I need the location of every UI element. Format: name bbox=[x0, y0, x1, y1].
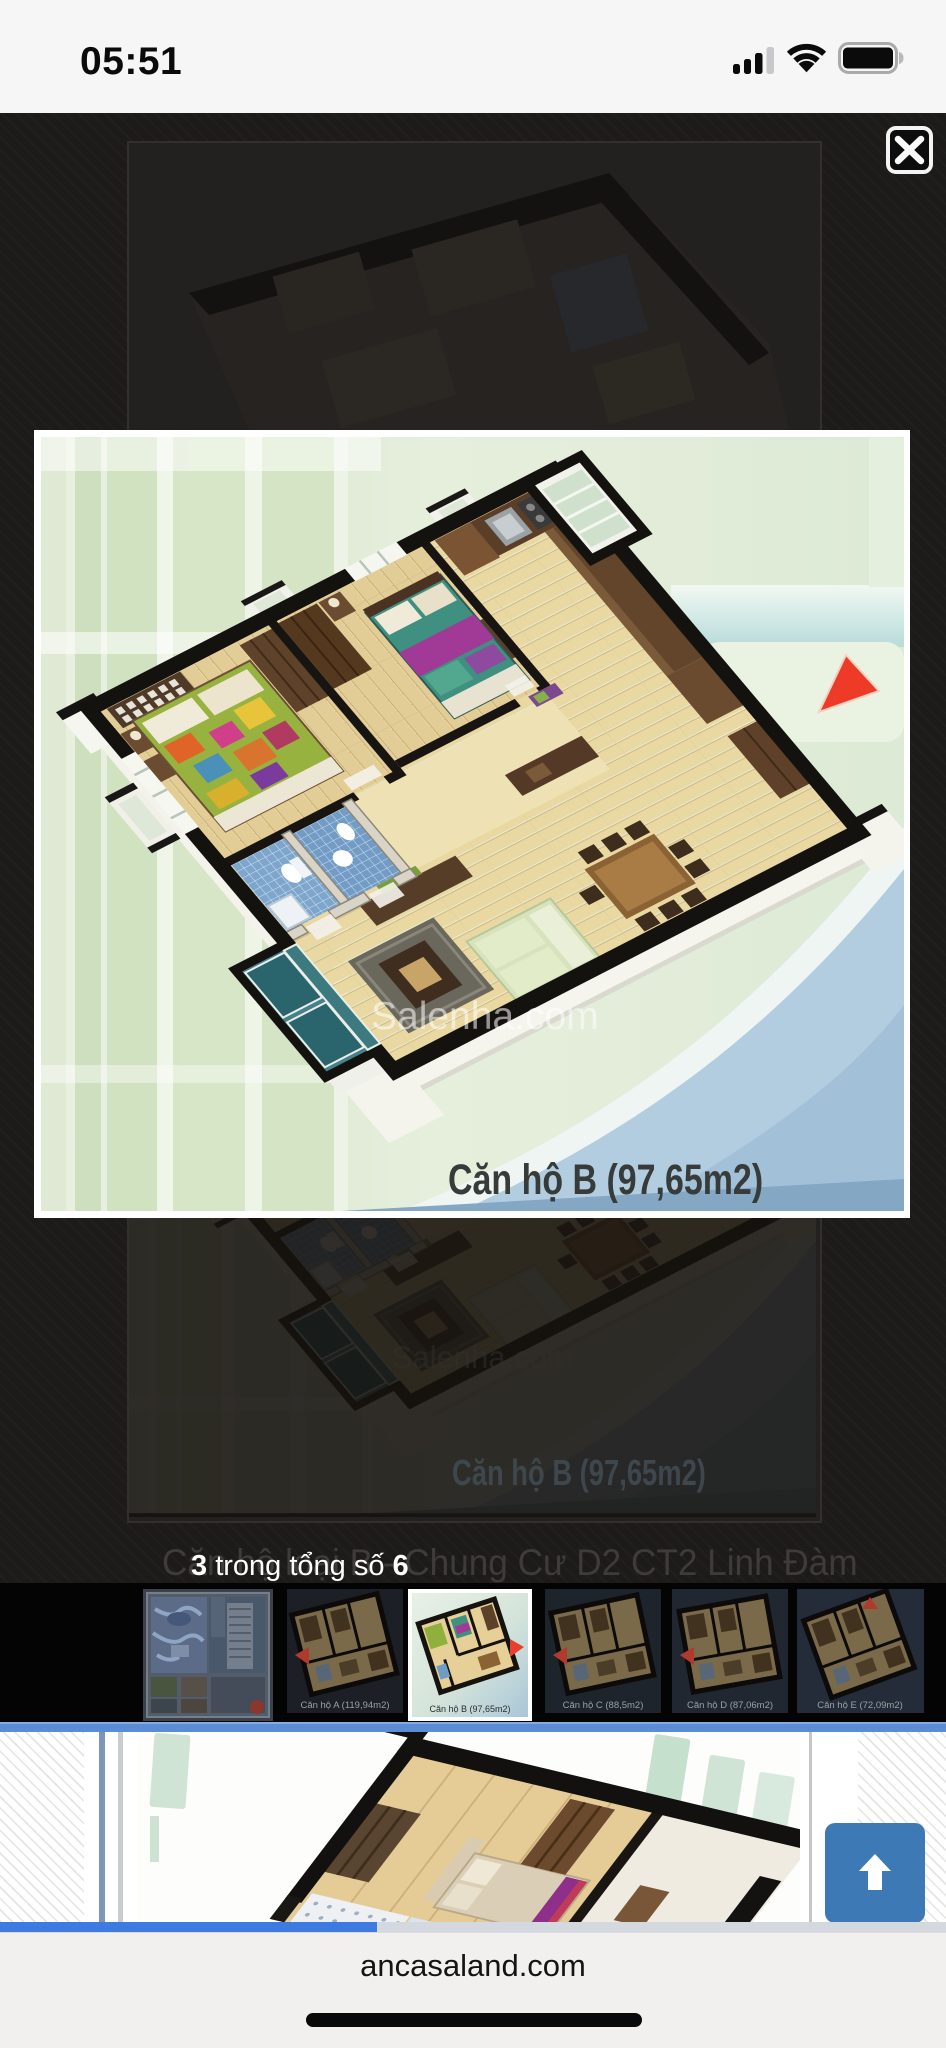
svg-text:Căn hộ B (97,65m2): Căn hộ B (97,65m2) bbox=[448, 1156, 763, 1204]
svg-text:Căn hộ D (87,06m2): Căn hộ D (87,06m2) bbox=[687, 1700, 773, 1711]
svg-text:Salenha.com: Salenha.com bbox=[371, 995, 599, 1038]
svg-text:Căn hộ B (97,65m2): Căn hộ B (97,65m2) bbox=[429, 1704, 510, 1714]
svg-text:Căn hộ C (88,5m2): Căn hộ C (88,5m2) bbox=[563, 1700, 644, 1711]
svg-text:Căn hộ E (72,09m2): Căn hộ E (72,09m2) bbox=[817, 1700, 903, 1711]
svg-text:Căn hộ A (119,94m2): Căn hộ A (119,94m2) bbox=[300, 1700, 389, 1711]
